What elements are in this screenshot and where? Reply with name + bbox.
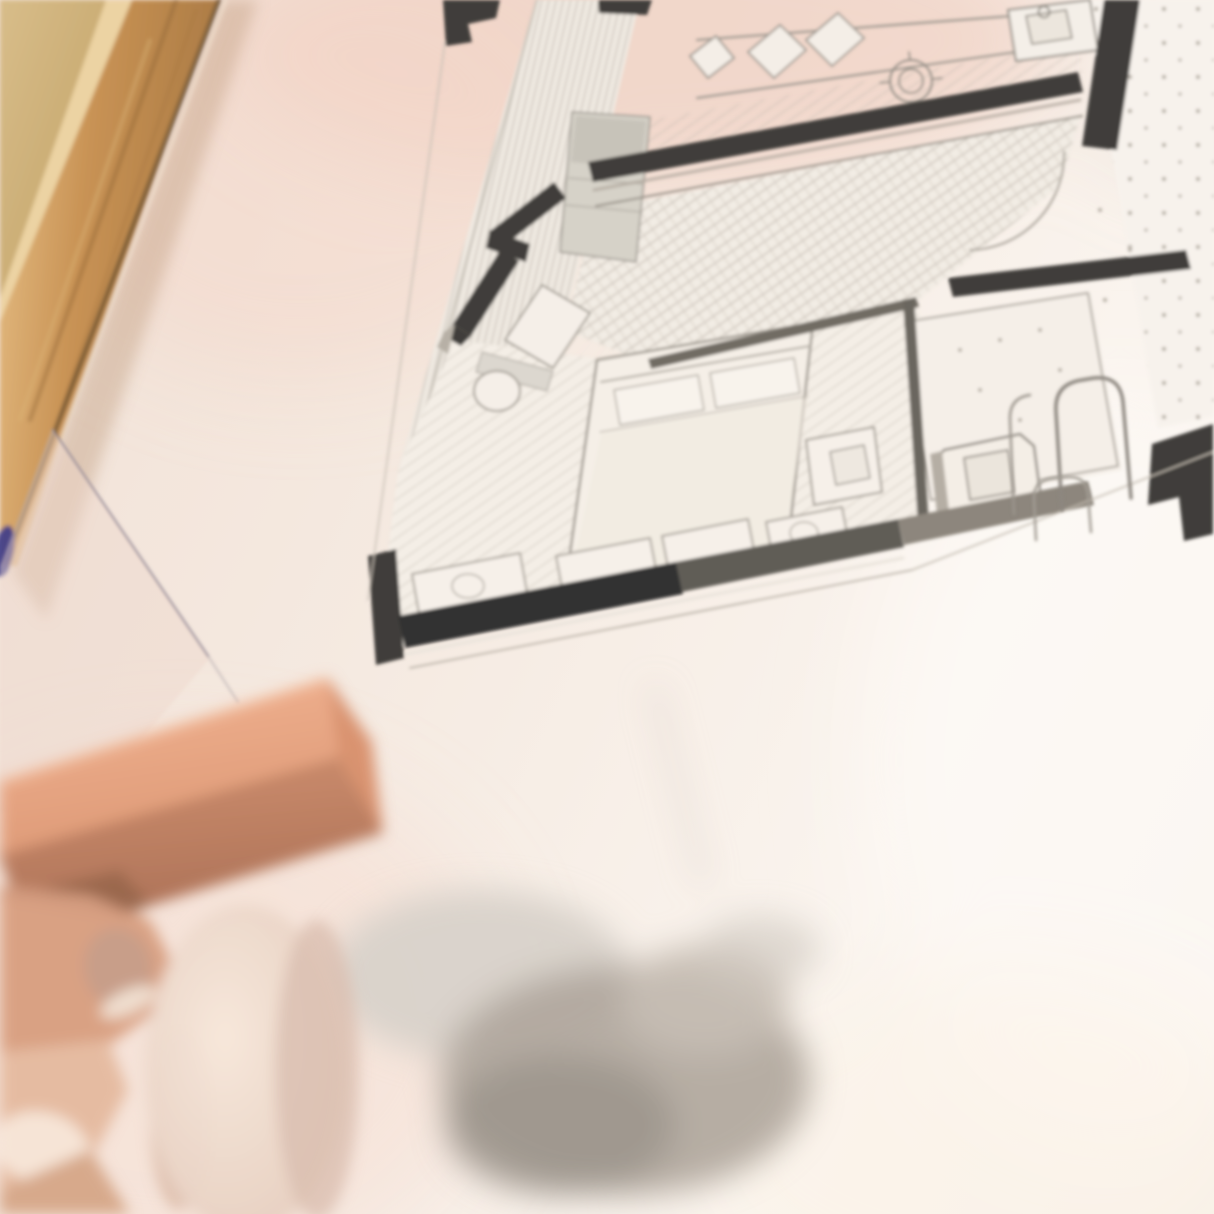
tile-dot-1 (958, 348, 962, 352)
toilet-tank (964, 450, 1014, 500)
dust-wisp (700, 915, 820, 985)
wall-top-segment (598, 0, 652, 15)
tile-dot-8 (1128, 248, 1132, 252)
pencil-out-of-focus (655, 690, 703, 880)
scene-svg (0, 0, 1214, 1214)
tile-dot-2 (998, 338, 1002, 342)
cooktop-tick-top (909, 52, 910, 60)
nightstand-inner (830, 445, 870, 485)
tile-dot-4 (978, 388, 982, 392)
tile-dot-5 (1058, 368, 1062, 372)
photo-scene (0, 0, 1214, 1214)
pencil-line-tail (208, 656, 238, 702)
pouf (474, 371, 520, 411)
blob-edge-shade (275, 920, 359, 1214)
tile-dot-7 (1098, 208, 1102, 212)
tile-dot-3 (1038, 328, 1042, 332)
tile-dot-6 (1018, 418, 1022, 422)
dust-dark-core (445, 1055, 675, 1195)
cooktop-tick-left (880, 82, 889, 83)
cooktop-tick-right (933, 78, 942, 79)
tile-dot-9 (1103, 298, 1107, 302)
